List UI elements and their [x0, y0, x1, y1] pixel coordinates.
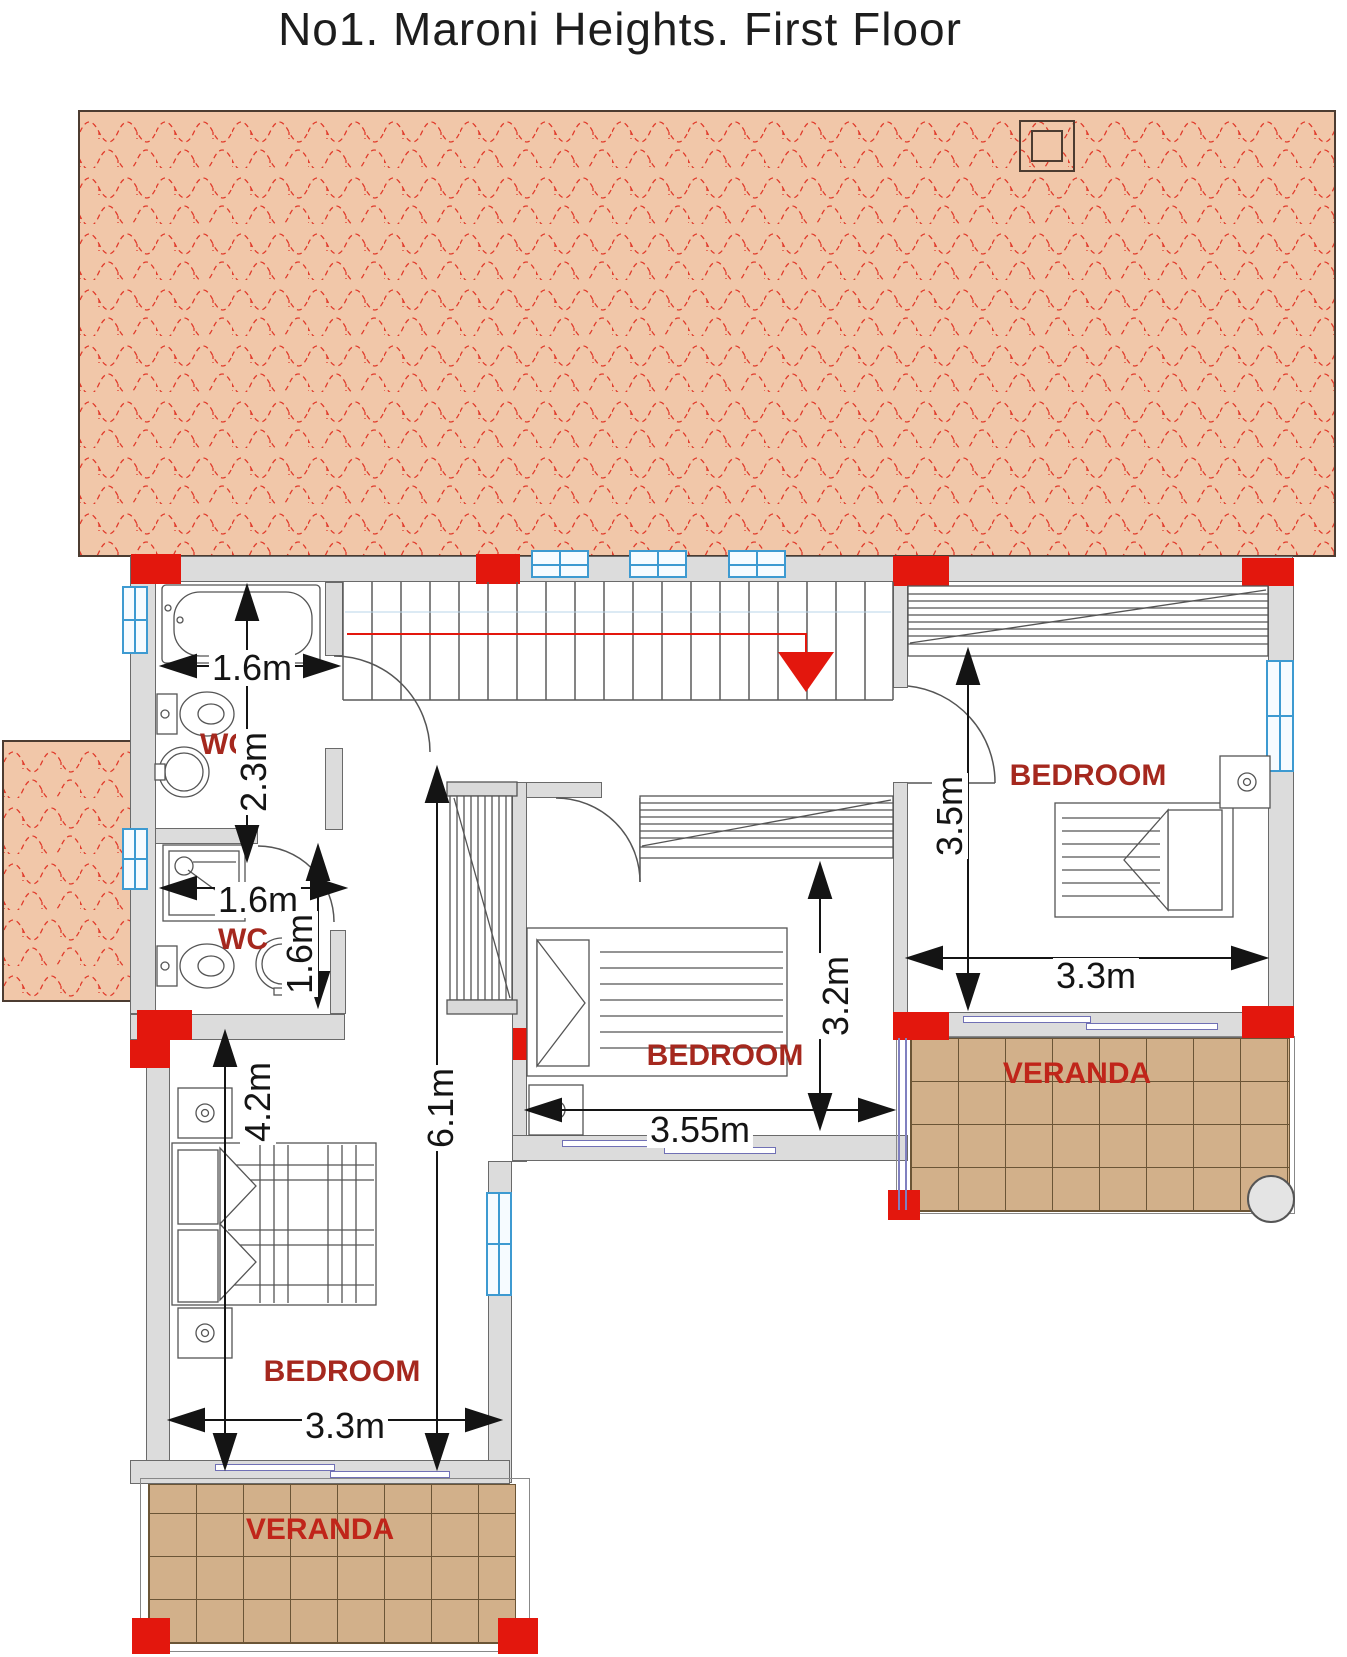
- wardrobe-mid-bedroom: [640, 796, 893, 858]
- dim-bedroom-left-height: 4.2m: [240, 1059, 276, 1145]
- floor-plan-canvas: No1. Maroni Heights. First Floor: [0, 0, 1347, 1657]
- room-label-bedroom-right: BEDROOM: [1010, 759, 1167, 793]
- door-swings: [258, 656, 995, 922]
- main-roof: [78, 110, 1336, 557]
- window-left-wc1: [122, 586, 148, 654]
- left-roof: [2, 740, 140, 1002]
- wardrobe-left-bedroom: [447, 782, 517, 1014]
- wall-wc-divider: [155, 828, 258, 844]
- door-wc1: [334, 656, 430, 752]
- dim-hall-height: 6.1m: [423, 1065, 459, 1151]
- dim-bedroom-right-height: 3.5m: [932, 773, 968, 859]
- sliding-door-veranda-b: [1086, 1023, 1218, 1030]
- room-label-veranda-right: VERANDA: [1003, 1057, 1151, 1091]
- column-top-right-inner: [893, 556, 949, 586]
- sliding-door-veranda-a: [963, 1016, 1091, 1023]
- chimney-inner: [1031, 130, 1063, 162]
- column-veranda-right-nw: [893, 1012, 949, 1040]
- room-label-wc2: WC: [218, 923, 268, 957]
- wall-left-lower: [146, 1014, 170, 1484]
- column-top-mid: [476, 554, 520, 584]
- column-left-mid-b: [130, 1040, 170, 1068]
- left-roof-tile-pattern: [4, 742, 138, 1000]
- wall-rightbedroom-left-upper: [893, 582, 908, 688]
- column-top-right-corner: [1242, 558, 1294, 586]
- dim-bedroom-right-width: 3.3m: [1053, 958, 1139, 994]
- sliding-door-leftbedroom-b: [330, 1471, 450, 1478]
- door-midbedroom: [556, 798, 640, 882]
- dim-bedroom-middle-width: 3.55m: [647, 1112, 753, 1148]
- room-label-bedroom-left: BEDROOM: [264, 1355, 421, 1389]
- window-leftbedroom-east: [486, 1192, 512, 1296]
- stairs: [343, 582, 893, 700]
- wardrobe-right-bedroom: [908, 586, 1268, 656]
- column-veranda-right-sw: [888, 1190, 920, 1220]
- single-bed-right: [1055, 803, 1233, 917]
- column-left-mid-a: [137, 1010, 192, 1040]
- page-title: No1. Maroni Heights. First Floor: [0, 2, 1240, 56]
- dim-bedroom-middle-height: 3.2m: [818, 953, 854, 1039]
- dim-bedroom-left-width: 3.3m: [302, 1408, 388, 1444]
- column-top-left: [131, 554, 181, 584]
- double-bed: [172, 1143, 376, 1305]
- roof-tile-pattern: [80, 112, 1334, 555]
- column-veranda-right-ne: [1242, 1006, 1294, 1038]
- wall-rightbedroom-left-lower: [893, 782, 908, 1014]
- wall-right: [1268, 582, 1294, 1014]
- window-top-3: [728, 550, 786, 578]
- veranda-bottom-floor: [148, 1484, 516, 1644]
- dim-wc1-height: 2.3m: [236, 729, 272, 815]
- column-veranda-bottom-sw: [132, 1618, 170, 1654]
- window-left-wc2: [122, 828, 148, 890]
- room-label-bedroom-middle: BEDROOM: [647, 1039, 804, 1073]
- dim-wc1-width: 1.6m: [209, 650, 295, 686]
- stair-direction-arrow: [347, 634, 834, 692]
- room-label-veranda-bottom: VERANDA: [246, 1513, 394, 1547]
- window-top-2: [629, 550, 687, 578]
- column-veranda-bottom-se: [498, 1618, 538, 1654]
- wall-wc2-right: [330, 930, 346, 1014]
- wall-midbedroom-left: [512, 782, 527, 1162]
- dim-wc2-height: 1.6m: [282, 911, 318, 997]
- door-rightbedroom: [908, 686, 995, 783]
- sliding-door-leftbedroom-a: [215, 1464, 335, 1471]
- window-top-1: [531, 550, 589, 578]
- column-midbedroom: [513, 1028, 541, 1060]
- wall-wc1-right-lower: [325, 748, 343, 830]
- window-right-bedroom: [1266, 660, 1294, 772]
- wall-wc1-right-upper: [325, 582, 343, 656]
- wall-top: [130, 556, 1293, 582]
